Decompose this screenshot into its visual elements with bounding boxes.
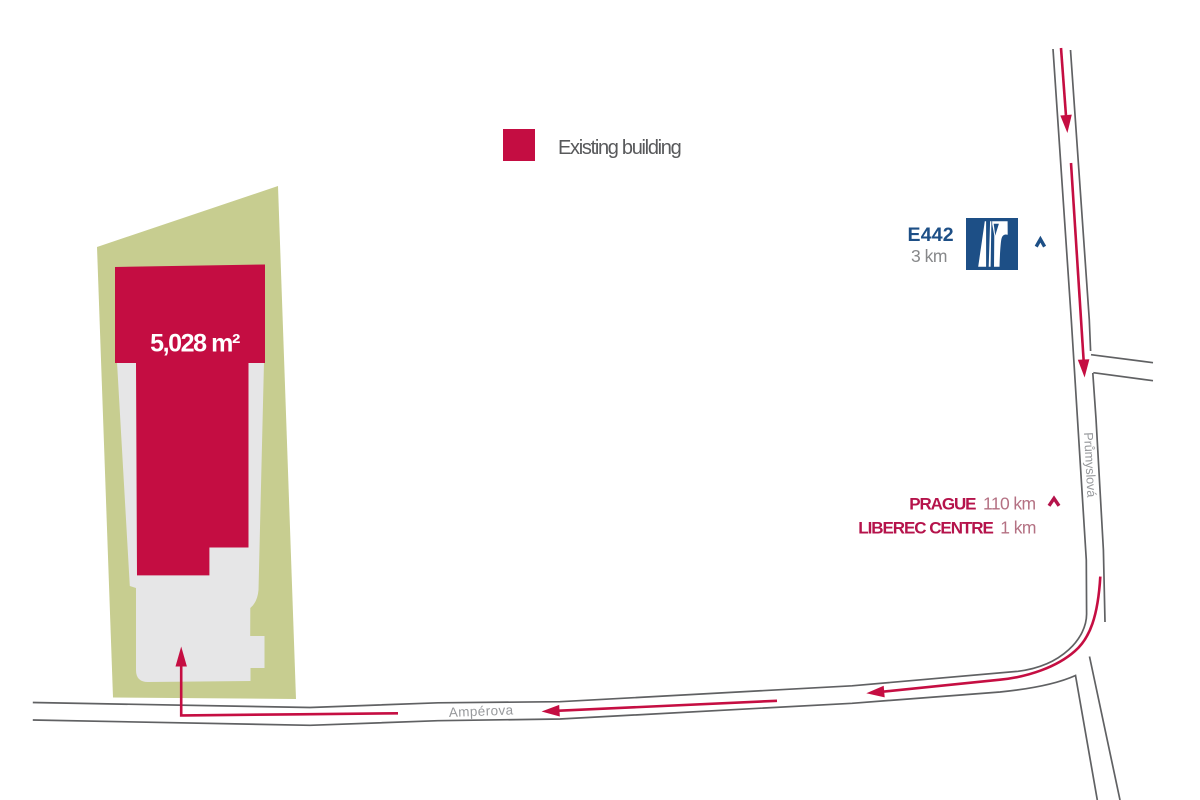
svg-text:E442: E442 (908, 224, 954, 246)
svg-text:1 km: 1 km (1000, 518, 1036, 538)
svg-text:110 km: 110 km (983, 494, 1036, 514)
svg-text:3 km: 3 km (911, 246, 947, 266)
svg-text:Existing building: Existing building (558, 137, 681, 159)
svg-text:Ampérova: Ampérova (449, 702, 514, 720)
svg-text:PRAGUE: PRAGUE (909, 495, 976, 514)
svg-text:LIBEREC CENTRE: LIBEREC CENTRE (858, 519, 993, 538)
svg-text:5,028 m²: 5,028 m² (150, 330, 240, 358)
